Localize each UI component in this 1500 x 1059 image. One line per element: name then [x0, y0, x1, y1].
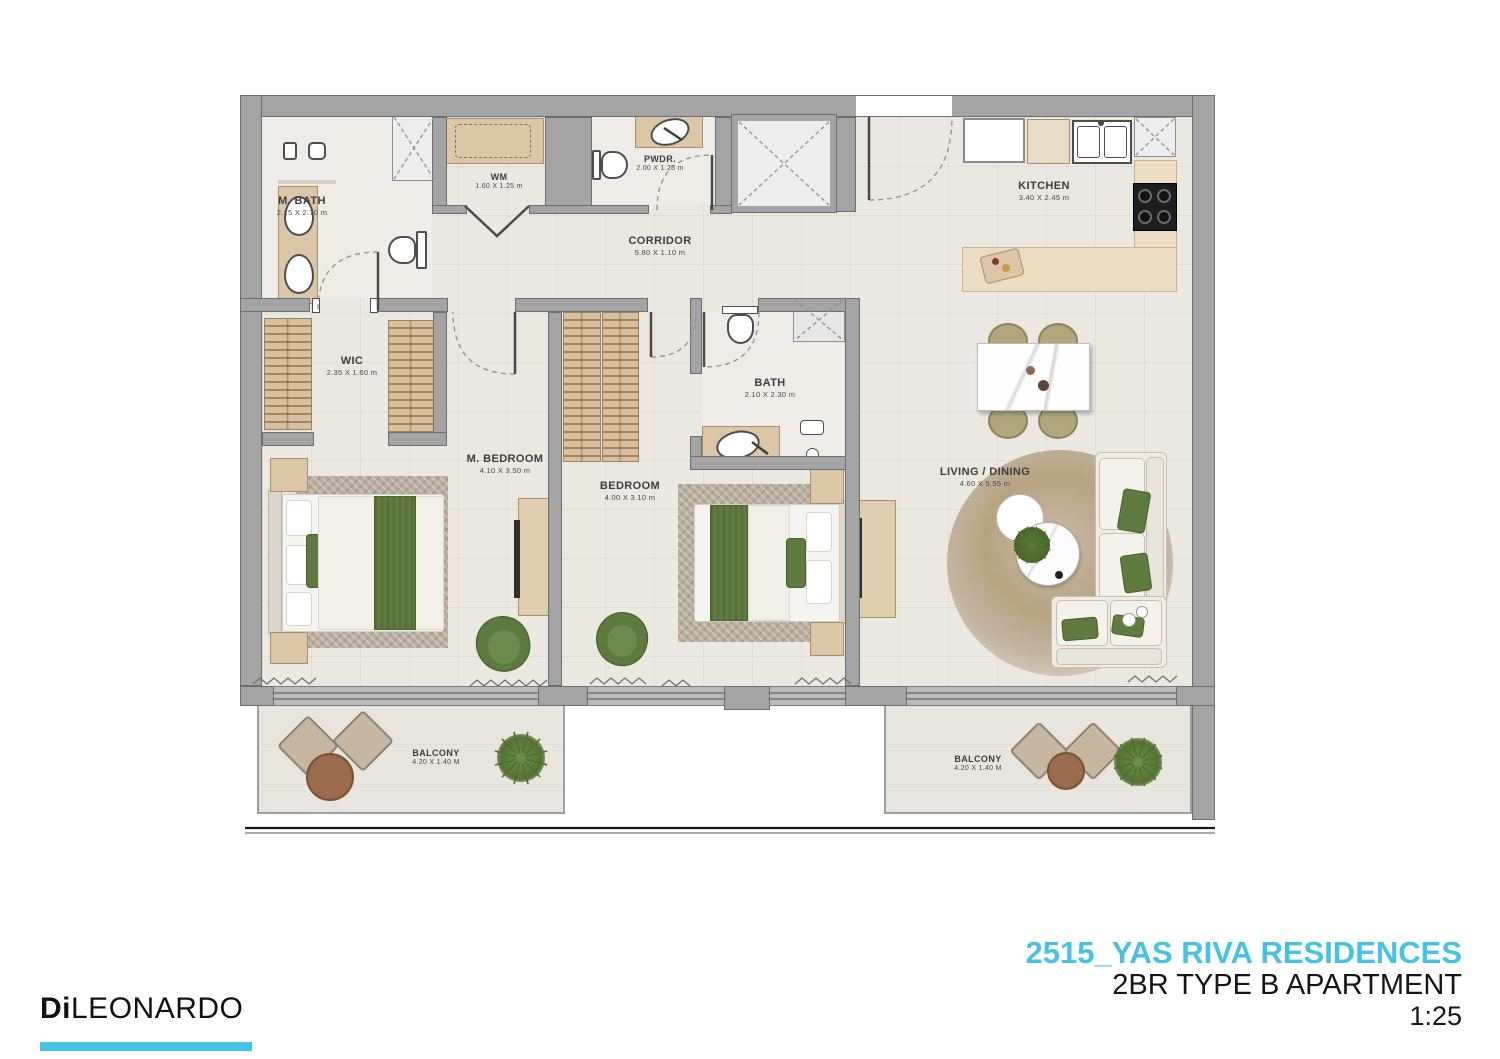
room-label-m-bedroom: M. BEDROOM 4.10 X 3.50 m	[467, 453, 544, 475]
room-label-wic: WIC 2.35 X 1.60 m	[327, 355, 378, 377]
wardrobe	[264, 318, 312, 430]
tv-console	[856, 500, 896, 618]
room-label-living-dining: LIVING / DINING 4.60 X 5.55 m	[940, 466, 1030, 488]
accent-chair-seat	[607, 625, 637, 657]
bathroom-accessory	[800, 420, 824, 435]
unit-title: 2BR TYPE B APARTMENT	[1026, 970, 1462, 1002]
room-label-m-bath: M. BATH 2.15 X 2.70 m	[277, 195, 328, 217]
toilet	[388, 236, 416, 264]
title-block: 2515_YAS RIVA RESIDENCES 2BR TYPE B APAR…	[1026, 936, 1462, 1032]
washing-machine	[455, 124, 531, 158]
bathroom-accessory	[283, 142, 297, 160]
wall	[240, 298, 310, 312]
ground-line	[245, 828, 1215, 833]
room-dims: 4.60 X 5.55 m	[940, 479, 1030, 488]
room-label-balcony-left: BALCONY 4.20 X 1.40 M	[412, 748, 459, 766]
burner	[1138, 210, 1152, 224]
wall	[690, 298, 702, 374]
toilet	[601, 151, 628, 179]
bathroom-accessory	[308, 142, 326, 160]
door-leaf	[312, 298, 320, 313]
toilet-cistern	[592, 150, 601, 180]
room-dims: 3.40 X 2.45 m	[1018, 193, 1070, 202]
room-dims: 1.60 X 1.25 m	[475, 183, 522, 190]
floor-plan-sheet: M. BATH 2.15 X 2.70 m WM 1.60 X 1.25 m P…	[0, 0, 1500, 1059]
room-dims: 2.10 X 2.30 m	[745, 390, 796, 399]
room-name: KITCHEN	[1018, 180, 1070, 192]
logo-underline-bar	[40, 1042, 252, 1051]
nightstand	[270, 632, 308, 664]
wall	[529, 205, 649, 214]
toilet-cistern	[416, 231, 427, 269]
room-name: M. BEDROOM	[467, 453, 544, 465]
wall	[388, 432, 447, 446]
pillow	[286, 500, 312, 536]
sofa-back	[1056, 648, 1162, 665]
wall	[836, 117, 856, 212]
toilet-cistern	[722, 306, 758, 314]
room-dims: 2.00 X 1.25 m	[636, 165, 683, 172]
wall-pier	[538, 686, 588, 706]
wall-top	[240, 95, 1215, 117]
room-name: BALCONY	[412, 748, 459, 758]
wall-pier	[724, 686, 770, 710]
room-label-balcony-right: BALCONY 4.20 X 1.40 M	[954, 754, 1001, 772]
tv	[514, 520, 520, 598]
room-label-kitchen: KITCHEN 3.40 X 2.45 m	[1018, 180, 1070, 202]
kitchen-cabinet	[1027, 119, 1070, 164]
sink-basin	[1104, 126, 1127, 158]
duvet	[748, 505, 790, 621]
wall-left	[240, 95, 262, 686]
wall	[690, 456, 860, 470]
room-label-pwdr: PWDR. 2.00 X 1.25 m	[636, 154, 683, 172]
shaft	[392, 115, 436, 181]
door-leaf	[370, 298, 378, 313]
balcony-table	[306, 753, 354, 801]
wall-pier	[240, 686, 274, 706]
pillow	[286, 592, 312, 626]
room-dims: 2.35 X 1.60 m	[327, 368, 378, 377]
wall	[433, 312, 447, 446]
wall	[758, 298, 852, 312]
project-title: 2515_YAS RIVA RESIDENCES	[1026, 936, 1462, 970]
pillow	[786, 538, 806, 588]
wall	[432, 117, 447, 212]
drawing-scale: 1:25	[1026, 1002, 1462, 1032]
vanity-counter-edge	[278, 180, 336, 184]
pillow	[806, 560, 832, 604]
plant	[1014, 527, 1050, 563]
balcony-table	[1047, 752, 1085, 790]
wardrobe	[602, 312, 639, 462]
wardrobe	[563, 312, 601, 462]
table-decor	[1055, 571, 1063, 579]
table-decor	[1038, 380, 1049, 391]
room-name: LIVING / DINING	[940, 466, 1030, 478]
room-name: M. BATH	[277, 195, 328, 207]
entry-opening	[856, 96, 952, 116]
side-table	[1122, 613, 1136, 627]
burner	[1157, 210, 1171, 224]
room-name: CORRIDOR	[628, 235, 691, 247]
wall-pier	[1176, 686, 1215, 706]
room-dims: 4.00 X 3.10 m	[600, 493, 660, 502]
toilet	[727, 314, 754, 344]
plant	[497, 734, 545, 782]
room-name: BEDROOM	[600, 480, 660, 492]
room-dims: 2.15 X 2.70 m	[277, 208, 328, 217]
wardrobe	[388, 320, 434, 432]
room-label-corridor: CORRIDOR 5.80 X 1.10 m	[628, 235, 691, 257]
wall	[715, 117, 732, 212]
bed-runner	[374, 496, 416, 630]
logo-bold-text: Di	[40, 992, 71, 1025]
wall	[710, 205, 732, 214]
pillow	[806, 512, 832, 552]
room-label-bath: BATH 2.10 X 2.30 m	[745, 377, 796, 399]
shaft	[1134, 117, 1176, 157]
sink	[284, 254, 314, 294]
bed-runner	[710, 505, 748, 621]
wall	[432, 205, 467, 214]
wall	[515, 298, 648, 312]
food-item	[992, 258, 999, 265]
room-label-wm: WM 1.60 X 1.25 m	[475, 172, 522, 190]
room-label-bedroom: BEDROOM 4.00 X 3.10 m	[600, 480, 660, 502]
sink-basin	[1077, 126, 1100, 158]
room-name: PWDR.	[636, 154, 683, 164]
wall	[548, 312, 562, 686]
logo-light-text: LEONARDO	[71, 992, 243, 1025]
fridge	[963, 118, 1025, 163]
nightstand	[810, 468, 844, 504]
sofa-pillow	[1119, 552, 1152, 594]
room-dims: 4.20 X 1.40 M	[412, 759, 459, 766]
room-name: BATH	[745, 377, 796, 389]
room-dims: 5.80 X 1.10 m	[628, 248, 691, 257]
room-dims: 4.10 X 3.50 m	[467, 466, 544, 475]
burner	[1138, 189, 1152, 203]
table-decor	[1026, 366, 1035, 375]
headboard	[268, 490, 282, 634]
plant	[1114, 738, 1162, 786]
nightstand	[270, 458, 308, 492]
wall	[378, 298, 448, 312]
wall	[845, 298, 860, 686]
wall	[545, 117, 592, 212]
side-table	[1136, 606, 1148, 618]
food-item	[1002, 264, 1010, 272]
room-dims: 4.20 X 1.40 M	[954, 765, 1001, 772]
nightstand	[810, 622, 844, 656]
room-name: WM	[475, 172, 522, 182]
room-name: WIC	[327, 355, 378, 367]
wall	[262, 432, 314, 446]
room-name: BALCONY	[954, 754, 1001, 764]
accent-chair-seat	[488, 630, 520, 664]
dileonardo-logo: DiLEONARDO	[40, 992, 243, 1026]
elevator-shaft	[732, 115, 836, 212]
dining-table	[977, 343, 1090, 411]
burner	[1157, 189, 1171, 203]
sofa-pillow	[1061, 616, 1099, 641]
wall-pier	[845, 686, 907, 706]
wall-right	[1192, 95, 1215, 820]
